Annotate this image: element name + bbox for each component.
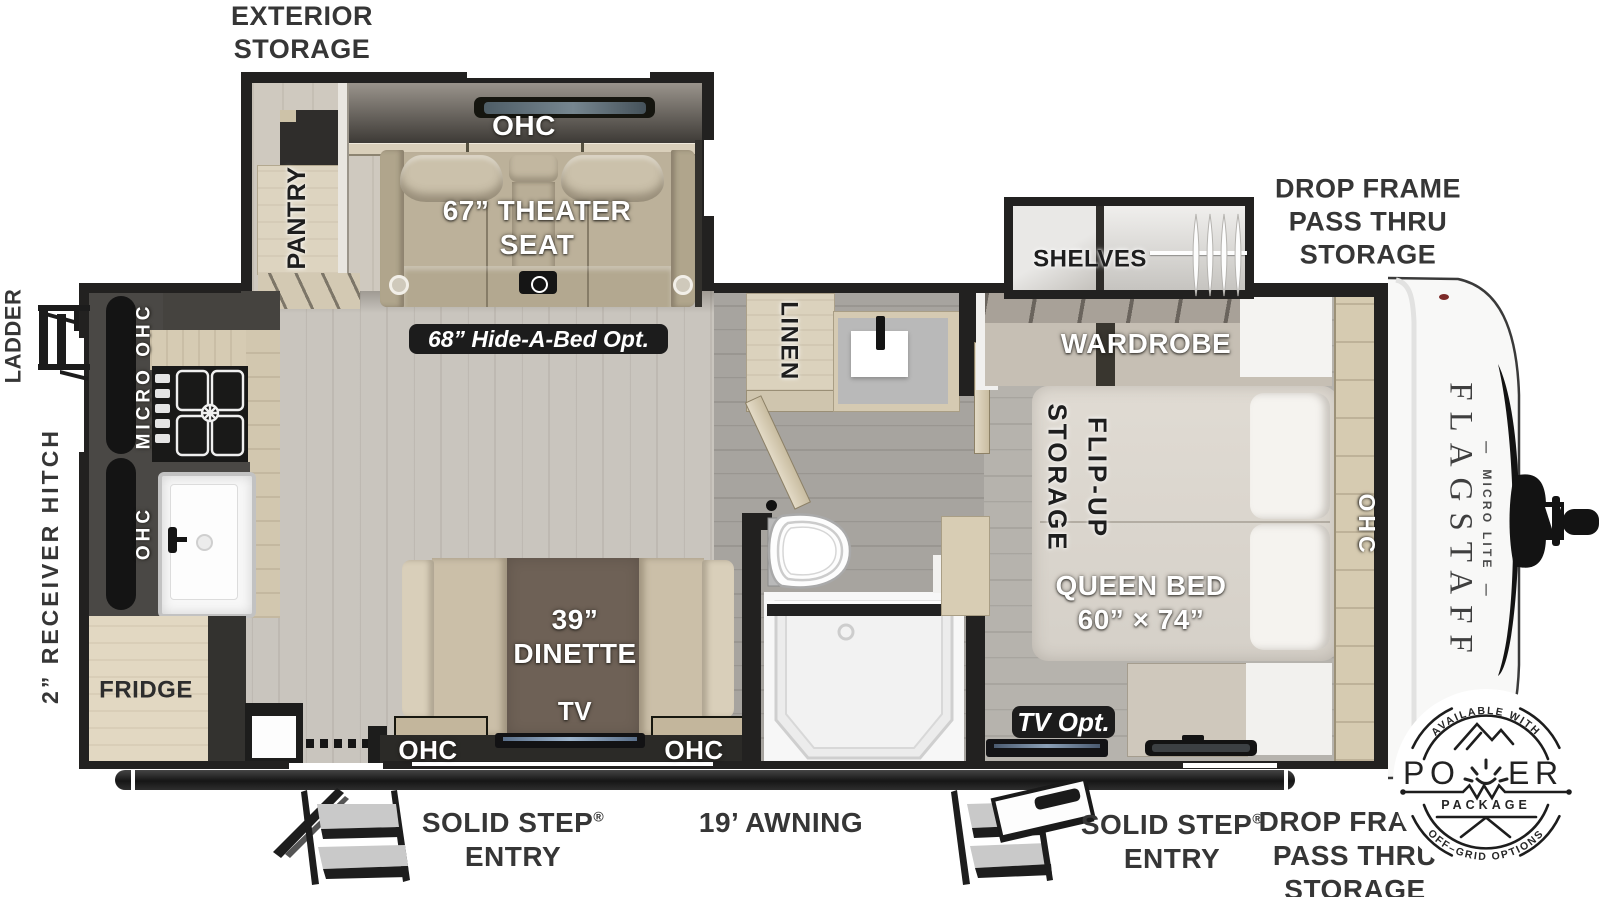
svg-text:O: O — [1430, 755, 1455, 791]
svg-text:P: P — [1403, 755, 1424, 791]
svg-text:E: E — [1508, 755, 1529, 791]
svg-text:PACKAGE: PACKAGE — [1441, 798, 1531, 812]
svg-text:R: R — [1535, 755, 1558, 791]
